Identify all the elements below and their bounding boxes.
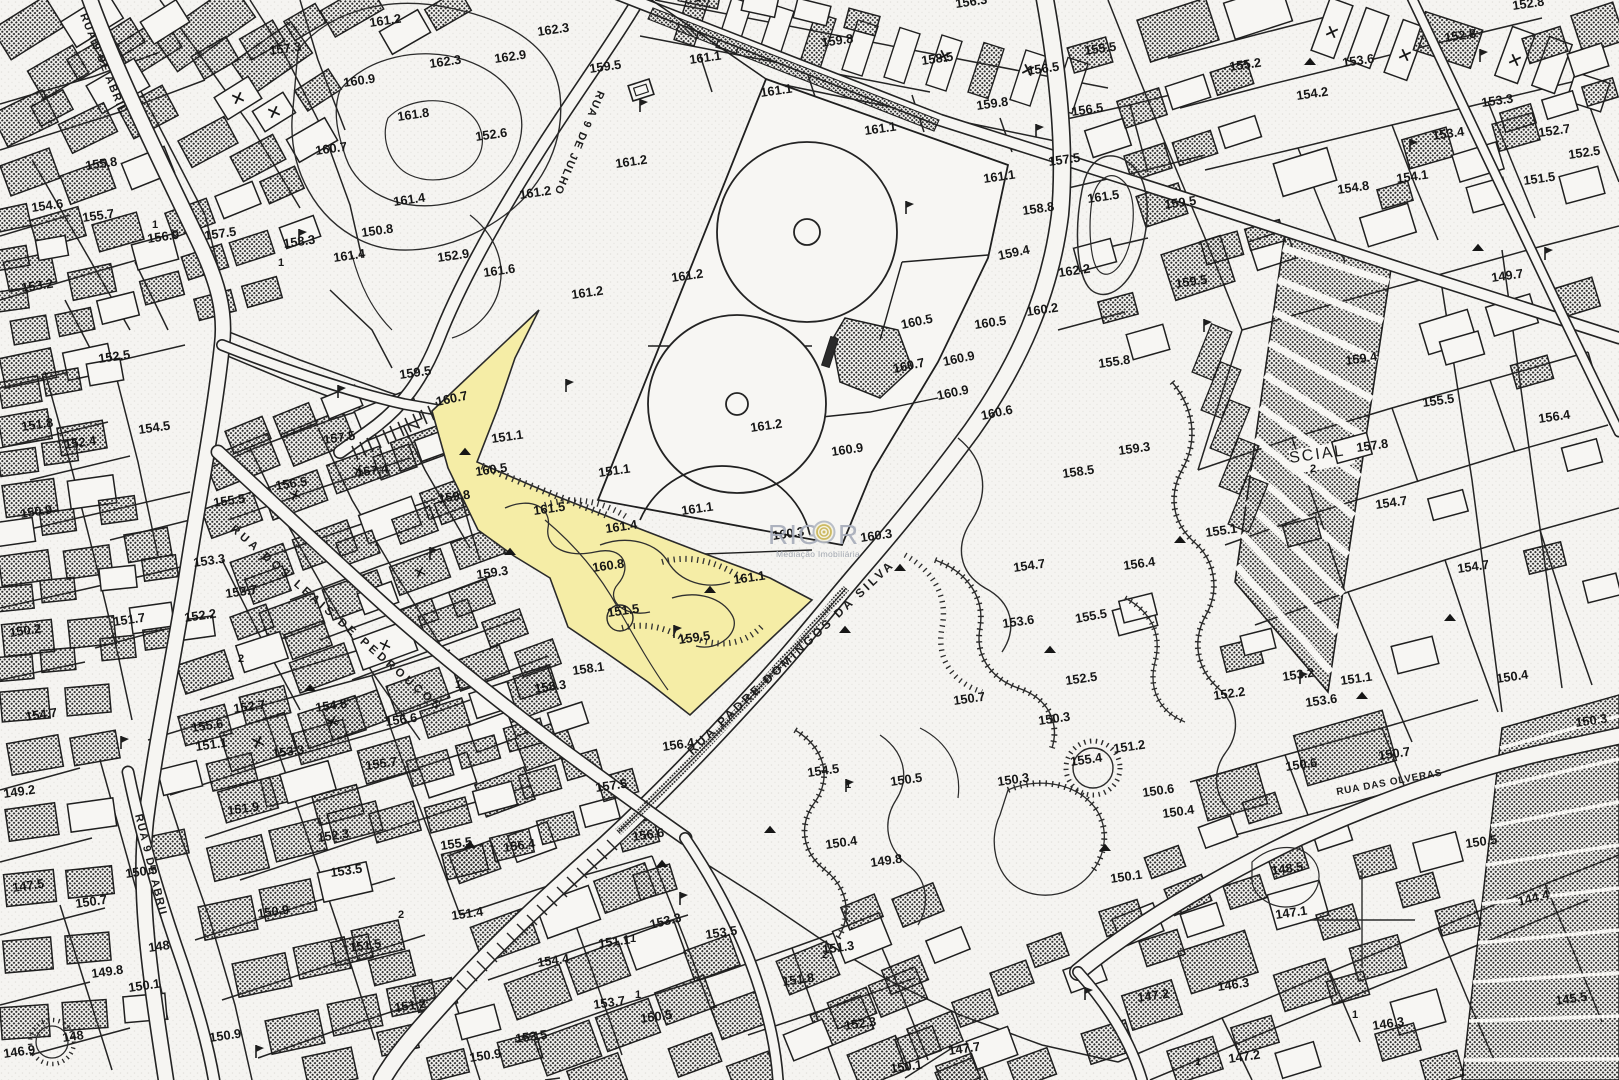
svg-text:148: 148 — [147, 937, 170, 955]
svg-text:1: 1 — [455, 679, 461, 691]
svg-text:2: 2 — [398, 909, 404, 921]
svg-text:2: 2 — [1310, 463, 1316, 475]
svg-text:R: R — [838, 519, 858, 550]
svg-text:1: 1 — [278, 257, 284, 269]
svg-text:1: 1 — [152, 219, 158, 231]
svg-text:1: 1 — [630, 933, 636, 945]
svg-text:1: 1 — [635, 989, 641, 1001]
svg-text:1: 1 — [1352, 1009, 1358, 1021]
svg-text:1: 1 — [845, 779, 851, 791]
svg-text:148: 148 — [61, 1027, 84, 1045]
svg-text:1: 1 — [1195, 1056, 1201, 1068]
svg-text:Mediação Imobiliária: Mediação Imobiliária — [776, 549, 860, 559]
svg-text:2: 2 — [822, 949, 828, 961]
svg-text:2: 2 — [238, 653, 244, 665]
